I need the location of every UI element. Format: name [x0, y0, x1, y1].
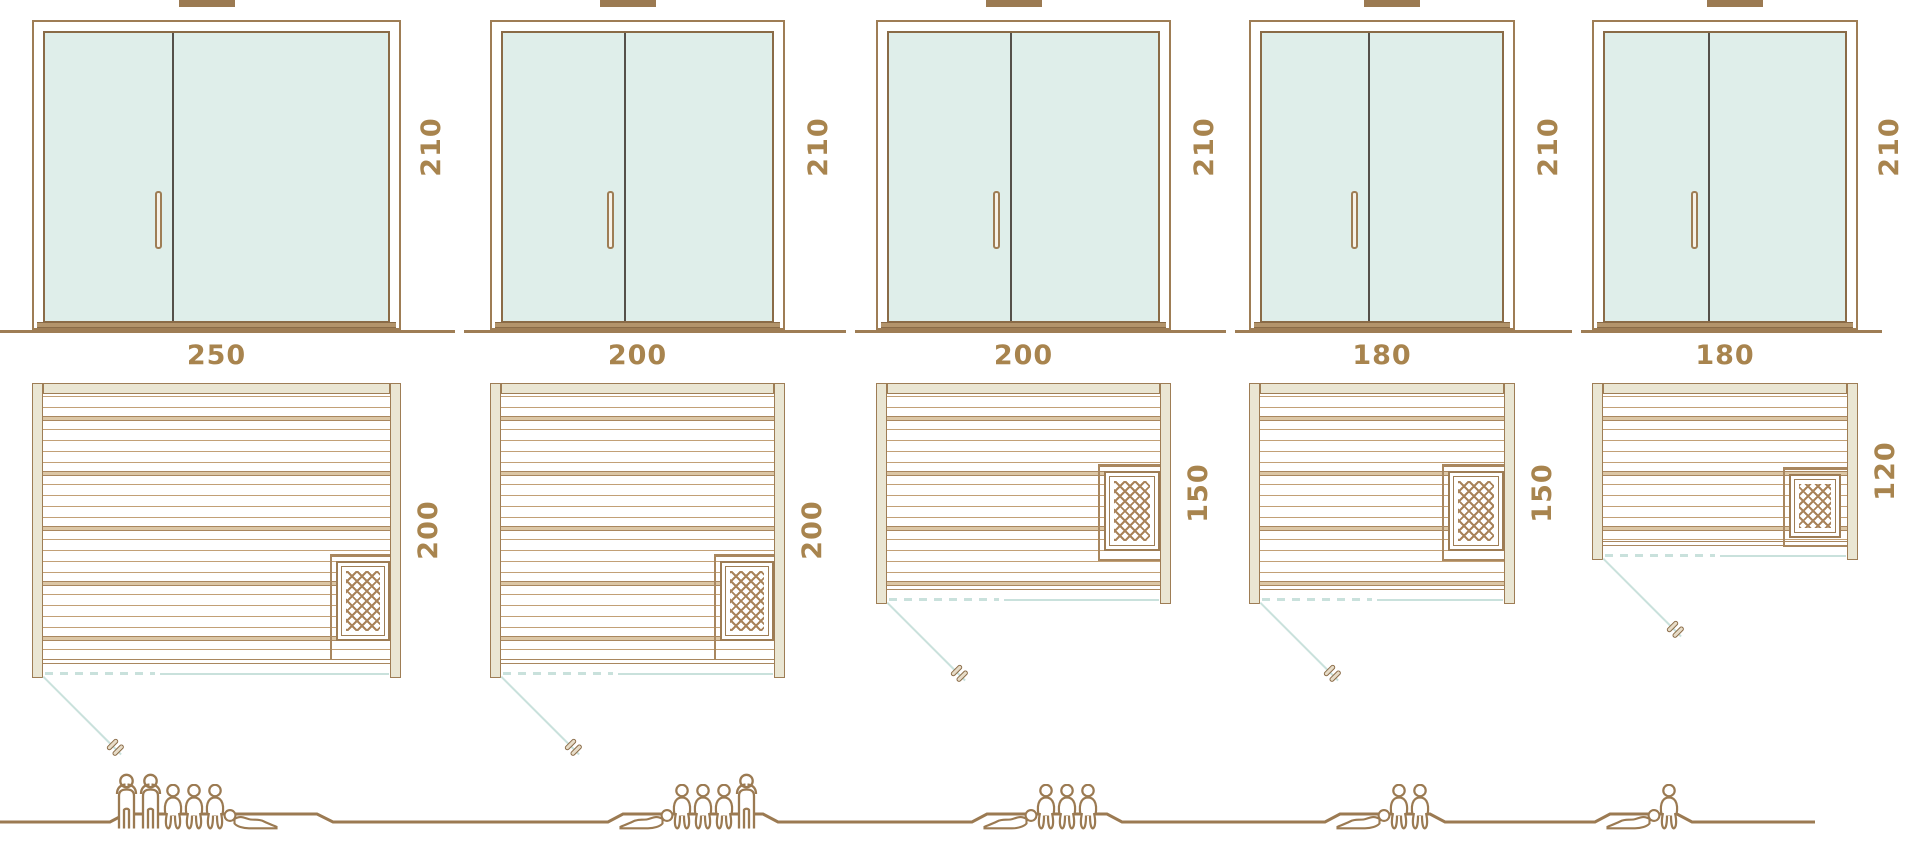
reclining-person-icon [223, 808, 279, 830]
door-threshold [881, 322, 1166, 328]
floor-plan-3 [876, 383, 1171, 604]
door-height-label: 210 [1191, 102, 1219, 192]
heater-frame [1794, 479, 1836, 533]
door-height-label: 210 [1876, 102, 1904, 192]
wall-post [876, 383, 887, 604]
capacity-figures-3 [982, 784, 1101, 830]
door-threshold [37, 322, 396, 328]
back-wall [501, 383, 774, 394]
plan-depth-label: 200 [799, 485, 827, 575]
glass-front-wall [1377, 599, 1503, 601]
bench-edge [887, 585, 1160, 590]
ground-line [1235, 330, 1572, 333]
bench-edge [43, 659, 390, 664]
heater-zone-line [1783, 545, 1847, 547]
glass-front-wall [1004, 599, 1159, 601]
glass-front-wall [160, 673, 389, 675]
standing-person-icon [732, 773, 761, 830]
heater [1448, 471, 1504, 551]
heater [720, 561, 774, 641]
wall-post [1847, 383, 1858, 560]
door-elevation-2 [490, 20, 785, 330]
roof-vent-icon [1707, 0, 1763, 7]
heater-zone-line [330, 554, 332, 660]
door-opening-dashed [1605, 554, 1715, 557]
capacity-figures-4 [1335, 784, 1433, 830]
ground-line [464, 330, 846, 333]
plan-depth-label: 200 [415, 485, 443, 575]
floor-plan-4 [1249, 383, 1515, 604]
floor-plan-2 [490, 383, 785, 678]
back-wall [887, 383, 1160, 394]
wall-post [1160, 383, 1171, 604]
wall-post [1249, 383, 1260, 604]
heater-frame [1109, 476, 1155, 546]
heater-mesh [1458, 481, 1494, 541]
heater-zone-line [1442, 464, 1504, 467]
floor-plan-5 [1592, 383, 1858, 560]
door-frame [32, 20, 401, 330]
door-opening-dashed [889, 598, 999, 601]
door-frame [1592, 20, 1858, 330]
wall-post [32, 383, 43, 678]
door-threshold [495, 322, 780, 328]
reclining-person-icon [618, 808, 674, 830]
ground-line [855, 330, 1226, 333]
plan-width-label: 250 [32, 342, 401, 370]
heater-zone-line [1442, 464, 1444, 559]
back-wall [43, 383, 390, 394]
door-opening-dashed [45, 672, 155, 675]
door-leaf-divider [624, 33, 626, 321]
ground-line [0, 330, 455, 333]
door-handle-icon [607, 191, 614, 249]
capacity-figures-2 [618, 773, 761, 830]
capacity-figures-1 [112, 773, 279, 830]
heater-zone-line [1098, 464, 1160, 467]
bench-edge [1260, 585, 1504, 590]
heater-mesh [1799, 484, 1831, 528]
heater-zone-line [714, 554, 716, 660]
door-elevation-3 [876, 20, 1171, 330]
heater-mesh [346, 571, 380, 631]
heater-zone-line [1783, 467, 1785, 545]
plan-depth-label: 150 [1529, 448, 1557, 538]
capacity-figures-5 [1605, 784, 1682, 830]
heater-mesh [1114, 481, 1150, 541]
door-threshold [1597, 322, 1853, 328]
door-handle-icon [1691, 191, 1698, 249]
door-height-label: 210 [418, 102, 446, 192]
roof-vent-icon [600, 0, 656, 7]
plan-depth-label: 120 [1872, 426, 1900, 516]
roof-vent-icon [1364, 0, 1420, 7]
heater-zone-line [330, 554, 390, 557]
wall-post [1592, 383, 1603, 560]
heater-zone-line [714, 554, 774, 557]
glass-front-wall [618, 673, 773, 675]
back-wall [1260, 383, 1504, 394]
plan-width-label: 200 [490, 342, 785, 370]
seated-person-icon [1656, 784, 1682, 830]
door-opening-dashed [1262, 598, 1372, 601]
heater-frame [725, 566, 769, 636]
door-height-label: 210 [805, 102, 833, 192]
door-glass [1260, 31, 1504, 323]
door-elevation-1 [32, 20, 401, 330]
door-leaf-divider [1010, 33, 1012, 321]
bench-edge [501, 659, 774, 664]
wall-post [390, 383, 401, 678]
door-leaf-divider [1708, 33, 1710, 321]
door-glass [1603, 31, 1847, 323]
heater-zone-line [1098, 464, 1100, 559]
reclining-person-icon [1605, 808, 1661, 830]
door-elevation-5 [1592, 20, 1858, 330]
reclining-person-icon [1335, 808, 1391, 830]
door-height-label: 210 [1535, 102, 1563, 192]
heater-frame [341, 566, 385, 636]
back-wall [1603, 383, 1847, 394]
ground-line [1581, 330, 1882, 333]
heater [1104, 471, 1160, 551]
heater [1789, 474, 1841, 538]
door-glass [43, 31, 390, 323]
heater-frame [1453, 476, 1499, 546]
roof-vent-icon [986, 0, 1042, 7]
heater-zone-line [1442, 559, 1504, 561]
wall-post [490, 383, 501, 678]
glass-front-wall [1720, 555, 1846, 557]
plan-depth-label: 150 [1185, 448, 1213, 538]
door-handle-icon [993, 191, 1000, 249]
plan-width-label: 180 [1249, 342, 1515, 370]
roof-vent-icon [179, 0, 235, 7]
plan-width-label: 180 [1592, 342, 1858, 370]
wall-post [774, 383, 785, 678]
wall-post [1504, 383, 1515, 604]
door-leaf-divider [1368, 33, 1370, 321]
heater-zone-line [1783, 467, 1847, 470]
door-handle-icon [1351, 191, 1358, 249]
door-leaf-divider [172, 33, 174, 321]
door-frame [1249, 20, 1515, 330]
sauna-size-diagram: 210 210 210 [0, 0, 1920, 856]
door-glass [501, 31, 774, 323]
heater-mesh [730, 571, 764, 631]
plan-width-label: 200 [876, 342, 1171, 370]
door-handle-icon [155, 191, 162, 249]
reclining-person-icon [982, 808, 1038, 830]
door-frame [490, 20, 785, 330]
door-glass [887, 31, 1160, 323]
heater-zone-line [1098, 559, 1160, 561]
heater [336, 561, 390, 641]
door-frame [876, 20, 1171, 330]
door-threshold [1254, 322, 1510, 328]
seated-person-icon [1075, 784, 1101, 830]
door-elevation-4 [1249, 20, 1515, 330]
floor-plan-1 [32, 383, 401, 678]
seated-person-icon [1407, 784, 1433, 830]
door-opening-dashed [503, 672, 613, 675]
